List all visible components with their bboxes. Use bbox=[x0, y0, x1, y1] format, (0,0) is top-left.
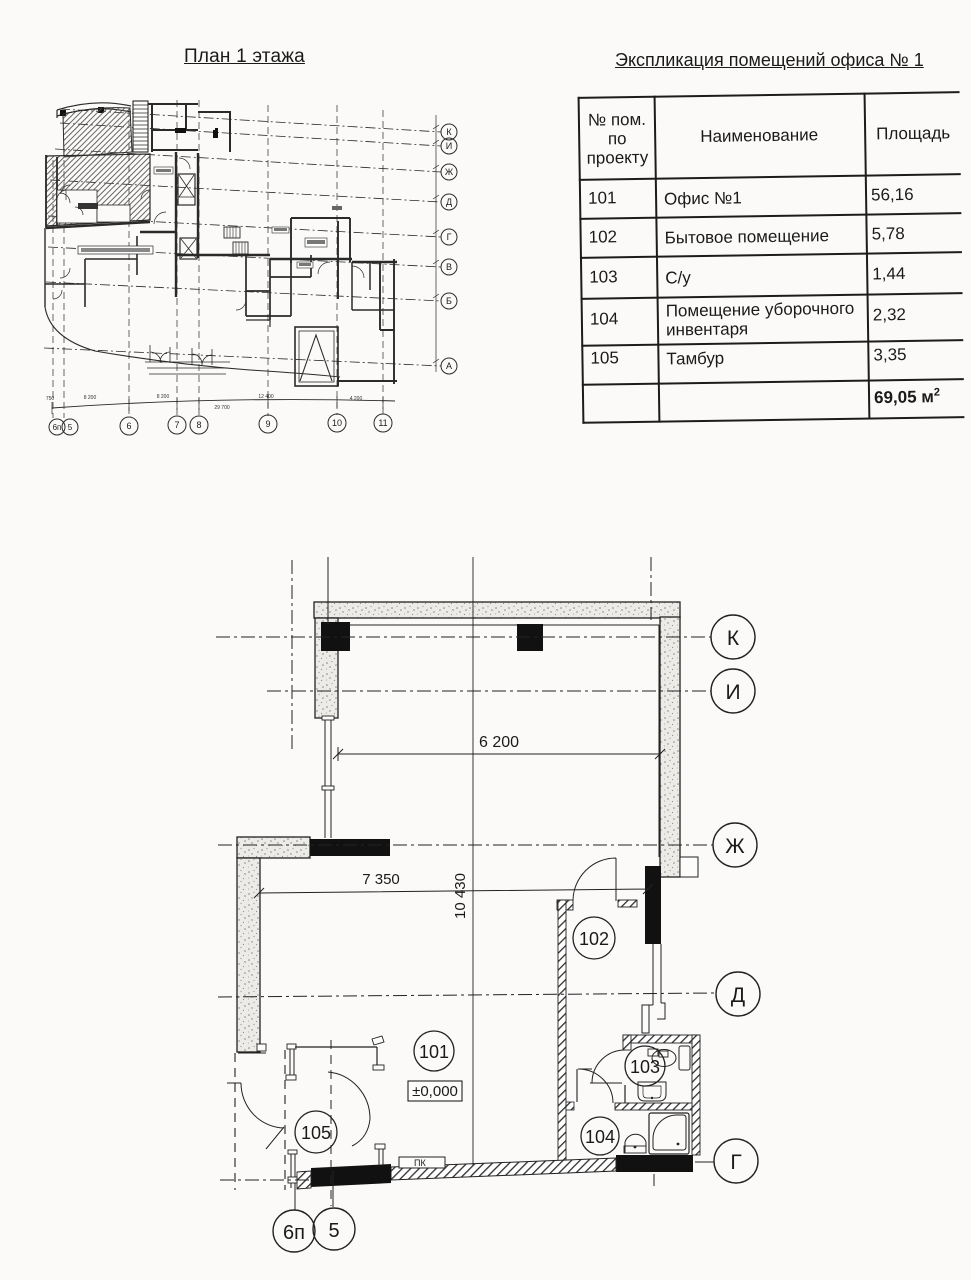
svg-text:Г: Г bbox=[447, 232, 452, 242]
svg-text:И: И bbox=[446, 141, 452, 151]
svg-text:Б: Б bbox=[446, 296, 452, 306]
svg-text:29 700: 29 700 bbox=[214, 405, 230, 411]
svg-text:105: 105 bbox=[301, 1123, 331, 1143]
svg-text:Ж: Ж bbox=[725, 835, 745, 858]
svg-text:8: 8 bbox=[196, 420, 201, 430]
svg-text:7 350: 7 350 bbox=[362, 871, 400, 888]
svg-text:8 200: 8 200 bbox=[157, 394, 170, 400]
svg-text:К: К bbox=[446, 127, 452, 137]
svg-text:К: К bbox=[727, 627, 740, 650]
svg-text:5: 5 bbox=[68, 423, 73, 432]
svg-text:Ж: Ж bbox=[445, 167, 454, 177]
svg-text:6п: 6п bbox=[53, 423, 62, 432]
svg-text:Д: Д bbox=[731, 984, 745, 1007]
svg-text:750: 750 bbox=[46, 396, 55, 402]
svg-text:11: 11 bbox=[378, 418, 387, 428]
svg-text:ПК: ПК bbox=[414, 1158, 426, 1168]
svg-text:8 200: 8 200 bbox=[84, 395, 97, 401]
svg-text:Д: Д bbox=[446, 197, 452, 207]
svg-text:Г: Г bbox=[730, 1151, 741, 1174]
svg-text:9: 9 bbox=[265, 419, 270, 429]
svg-text:А: А bbox=[446, 361, 452, 371]
svg-text:101: 101 bbox=[419, 1042, 449, 1062]
svg-text:10 430: 10 430 bbox=[452, 873, 469, 919]
svg-text:102: 102 bbox=[579, 929, 609, 949]
svg-text:10: 10 bbox=[332, 418, 342, 428]
svg-text:7: 7 bbox=[174, 420, 179, 430]
svg-text:5: 5 bbox=[328, 1220, 339, 1242]
svg-text:И: И bbox=[725, 681, 740, 704]
svg-text:104: 104 bbox=[585, 1127, 615, 1147]
svg-text:6п: 6п bbox=[283, 1222, 305, 1244]
svg-text:12 400: 12 400 bbox=[258, 394, 274, 400]
svg-text:6: 6 bbox=[126, 421, 131, 431]
svg-text:6 200: 6 200 bbox=[479, 734, 519, 751]
svg-text:±0,000: ±0,000 bbox=[412, 1083, 458, 1100]
svg-text:4 200: 4 200 bbox=[350, 396, 363, 402]
svg-text:В: В bbox=[446, 262, 452, 272]
svg-text:103: 103 bbox=[630, 1057, 660, 1077]
